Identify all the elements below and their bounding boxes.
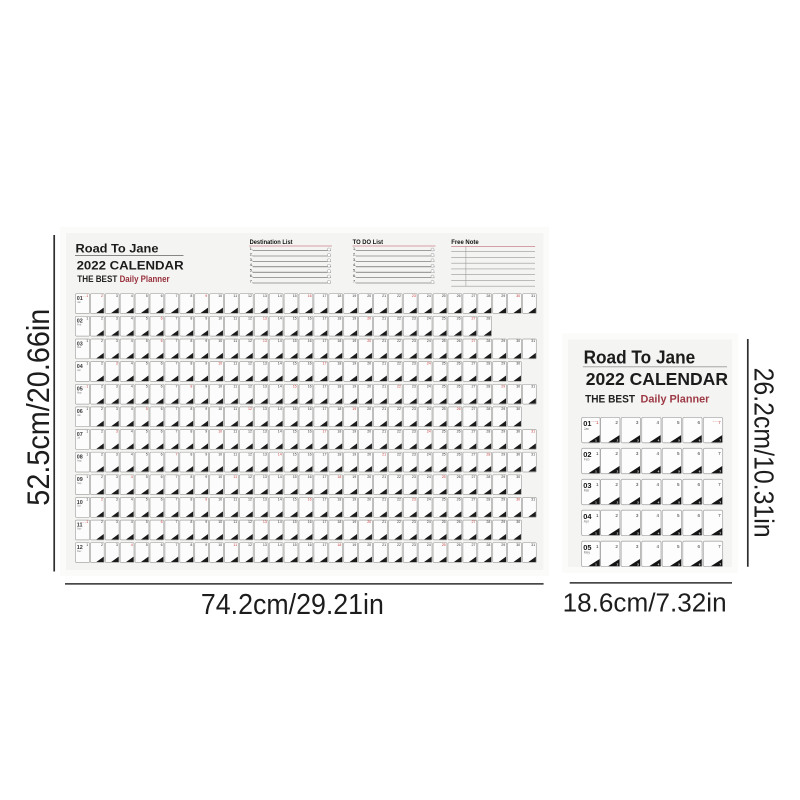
svg-text:20: 20 <box>367 543 371 547</box>
svg-text:6: 6 <box>161 498 163 502</box>
svg-text:24: 24 <box>427 362 431 366</box>
svg-text:27: 27 <box>472 475 476 479</box>
svg-text:16: 16 <box>308 407 312 411</box>
svg-text:13: 13 <box>263 430 267 434</box>
svg-text:3: 3 <box>116 475 118 479</box>
svg-text:19: 19 <box>352 294 356 298</box>
svg-text:18: 18 <box>337 452 341 456</box>
svg-text:27: 27 <box>472 362 476 366</box>
svg-text:6: 6 <box>699 501 701 505</box>
svg-text:6: 6 <box>161 407 163 411</box>
svg-text:15: 15 <box>293 384 297 388</box>
svg-text:14: 14 <box>278 384 282 388</box>
svg-text:27: 27 <box>472 543 476 547</box>
svg-text:17: 17 <box>323 430 327 434</box>
svg-text:7: 7 <box>719 501 721 505</box>
svg-text:25: 25 <box>442 452 446 456</box>
svg-text:5: 5 <box>146 384 148 388</box>
svg-text:13: 13 <box>263 543 267 547</box>
svg-text:21: 21 <box>382 316 386 320</box>
svg-text:29: 29 <box>501 362 505 366</box>
svg-text:23: 23 <box>412 316 416 320</box>
svg-text:17: 17 <box>323 339 327 343</box>
svg-text:Jan: Jan <box>584 427 589 431</box>
svg-text:6: 6 <box>698 451 701 456</box>
svg-text:6: 6 <box>161 384 163 388</box>
svg-text:5: 5 <box>146 362 148 366</box>
svg-text:1.: 1. <box>353 247 356 251</box>
svg-text:8: 8 <box>190 520 192 524</box>
svg-text:6: 6 <box>698 513 701 518</box>
svg-text:11: 11 <box>233 384 237 388</box>
svg-text:23: 23 <box>412 294 416 298</box>
svg-text:24: 24 <box>427 407 431 411</box>
svg-text:1: 1 <box>595 562 597 566</box>
svg-text:5.: 5. <box>353 269 356 273</box>
svg-text:Apr: Apr <box>584 520 590 524</box>
svg-text:2: 2 <box>617 562 619 566</box>
svg-text:22: 22 <box>397 362 401 366</box>
svg-text:15: 15 <box>293 475 297 479</box>
svg-text:12: 12 <box>248 543 252 547</box>
svg-text:25: 25 <box>442 339 446 343</box>
svg-text:30: 30 <box>516 362 520 366</box>
svg-text:Daily Planner: Daily Planner <box>120 274 170 284</box>
svg-text:23: 23 <box>412 498 416 502</box>
svg-text:2022 CALENDAR: 2022 CALENDAR <box>586 369 729 389</box>
svg-text:30: 30 <box>516 407 520 411</box>
svg-text:13: 13 <box>263 475 267 479</box>
svg-text:18: 18 <box>337 520 341 524</box>
svg-text:3: 3 <box>637 439 639 443</box>
svg-text:Mar: Mar <box>77 346 81 349</box>
svg-text:Jan: Jan <box>77 301 82 304</box>
svg-text:6: 6 <box>161 475 163 479</box>
svg-text:16: 16 <box>308 543 312 547</box>
svg-text:9: 9 <box>205 316 207 320</box>
svg-text:18: 18 <box>337 543 341 547</box>
svg-text:24: 24 <box>427 316 431 320</box>
svg-text:30: 30 <box>516 498 520 502</box>
svg-text:23: 23 <box>412 543 416 547</box>
svg-text:27: 27 <box>472 498 476 502</box>
svg-text:21: 21 <box>382 452 386 456</box>
svg-text:3: 3 <box>636 482 639 487</box>
svg-text:16: 16 <box>308 498 312 502</box>
svg-text:10: 10 <box>218 407 222 411</box>
svg-text:7: 7 <box>176 498 178 502</box>
svg-text:28: 28 <box>486 407 490 411</box>
svg-text:4: 4 <box>131 430 133 434</box>
svg-text:74.2cm/29.21in: 74.2cm/29.21in <box>201 589 384 621</box>
svg-text:2: 2 <box>101 362 103 366</box>
svg-text:3: 3 <box>116 339 118 343</box>
svg-text:26: 26 <box>457 475 461 479</box>
svg-text:2: 2 <box>101 407 103 411</box>
svg-text:28: 28 <box>486 362 490 366</box>
svg-text:4: 4 <box>131 339 133 343</box>
svg-text:25: 25 <box>442 316 446 320</box>
svg-text:14: 14 <box>278 543 282 547</box>
svg-text:27: 27 <box>472 339 476 343</box>
svg-text:29: 29 <box>501 452 505 456</box>
svg-text:4: 4 <box>131 543 133 547</box>
svg-text:2: 2 <box>617 439 619 443</box>
svg-text:17: 17 <box>323 452 327 456</box>
svg-text:Aug: Aug <box>77 459 82 462</box>
svg-text:5: 5 <box>677 544 680 549</box>
svg-text:1: 1 <box>595 532 597 536</box>
svg-text:31: 31 <box>531 543 535 547</box>
svg-text:2: 2 <box>617 501 619 505</box>
svg-text:28: 28 <box>486 316 490 320</box>
svg-text:Mar: Mar <box>584 489 591 493</box>
svg-text:28: 28 <box>486 294 490 298</box>
svg-text:14: 14 <box>278 452 282 456</box>
svg-text:5: 5 <box>678 470 680 474</box>
svg-text:14: 14 <box>278 362 282 366</box>
svg-text:Feb: Feb <box>77 324 82 327</box>
svg-text:7: 7 <box>718 420 721 425</box>
svg-text:17: 17 <box>323 543 327 547</box>
svg-text:1: 1 <box>86 430 88 434</box>
svg-text:2: 2 <box>101 452 103 456</box>
svg-text:7: 7 <box>176 316 178 320</box>
svg-text:1: 1 <box>86 498 88 502</box>
svg-text:22: 22 <box>397 498 401 502</box>
svg-text:4: 4 <box>131 520 133 524</box>
svg-text:8: 8 <box>190 362 192 366</box>
svg-text:30: 30 <box>516 430 520 434</box>
svg-text:18: 18 <box>337 407 341 411</box>
svg-text:23: 23 <box>412 475 416 479</box>
svg-text:9: 9 <box>205 520 207 524</box>
svg-text:1: 1 <box>596 544 599 549</box>
svg-text:15: 15 <box>293 498 297 502</box>
svg-text:4: 4 <box>131 362 133 366</box>
svg-text:16: 16 <box>308 384 312 388</box>
svg-text:2: 2 <box>101 475 103 479</box>
svg-text:24: 24 <box>427 430 431 434</box>
svg-text:8: 8 <box>190 384 192 388</box>
svg-text:7: 7 <box>176 452 178 456</box>
svg-text:4: 4 <box>658 532 660 536</box>
svg-text:18.6cm/7.32in: 18.6cm/7.32in <box>563 590 727 618</box>
svg-text:26: 26 <box>457 316 461 320</box>
svg-text:3: 3 <box>116 452 118 456</box>
svg-text:29: 29 <box>501 520 505 524</box>
svg-text:Sep: Sep <box>77 482 82 485</box>
svg-text:5: 5 <box>146 452 148 456</box>
svg-text:21: 21 <box>382 498 386 502</box>
svg-text:10: 10 <box>218 475 222 479</box>
svg-text:4: 4 <box>131 407 133 411</box>
svg-text:26: 26 <box>457 339 461 343</box>
svg-text:21: 21 <box>382 339 386 343</box>
svg-text:12: 12 <box>248 452 252 456</box>
svg-text:23: 23 <box>412 520 416 524</box>
svg-text:19: 19 <box>352 316 356 320</box>
svg-text:Apr: Apr <box>77 369 81 372</box>
svg-text:9: 9 <box>205 384 207 388</box>
svg-text:9: 9 <box>205 498 207 502</box>
svg-text:16: 16 <box>308 430 312 434</box>
svg-text:3: 3 <box>636 451 639 456</box>
svg-text:17: 17 <box>323 362 327 366</box>
svg-text:15: 15 <box>293 316 297 320</box>
svg-text:18: 18 <box>337 339 341 343</box>
svg-text:Oct: Oct <box>77 505 81 508</box>
svg-text:7: 7 <box>176 543 178 547</box>
svg-text:3: 3 <box>116 543 118 547</box>
svg-text:3: 3 <box>636 513 639 518</box>
svg-text:5: 5 <box>146 430 148 434</box>
svg-text:May: May <box>584 551 591 555</box>
svg-text:8: 8 <box>190 316 192 320</box>
svg-text:1: 1 <box>86 362 88 366</box>
svg-text:16: 16 <box>308 475 312 479</box>
svg-text:28: 28 <box>486 475 490 479</box>
svg-text:7: 7 <box>718 513 721 518</box>
svg-text:5: 5 <box>146 339 148 343</box>
svg-text:6: 6 <box>161 520 163 524</box>
svg-text:21: 21 <box>382 407 386 411</box>
svg-text:19: 19 <box>352 498 356 502</box>
svg-text:19: 19 <box>352 430 356 434</box>
svg-text:23: 23 <box>412 384 416 388</box>
svg-text:4: 4 <box>131 452 133 456</box>
svg-text:5: 5 <box>146 543 148 547</box>
svg-text:17: 17 <box>323 520 327 524</box>
svg-text:30: 30 <box>516 294 520 298</box>
svg-text:24: 24 <box>427 384 431 388</box>
svg-text:23: 23 <box>412 430 416 434</box>
svg-text:16: 16 <box>308 294 312 298</box>
svg-text:30: 30 <box>516 384 520 388</box>
svg-text:20: 20 <box>367 316 371 320</box>
svg-text:1: 1 <box>86 294 88 298</box>
svg-text:27: 27 <box>472 520 476 524</box>
svg-text:15: 15 <box>293 407 297 411</box>
svg-text:9: 9 <box>205 475 207 479</box>
svg-text:2: 2 <box>615 513 618 518</box>
svg-text:14: 14 <box>278 475 282 479</box>
svg-text:4: 4 <box>658 562 660 566</box>
svg-text:12: 12 <box>248 384 252 388</box>
svg-text:28: 28 <box>486 430 490 434</box>
svg-text:15: 15 <box>293 362 297 366</box>
svg-text:6: 6 <box>698 482 701 487</box>
svg-text:22: 22 <box>397 452 401 456</box>
svg-text:5: 5 <box>678 532 680 536</box>
svg-text:31: 31 <box>531 384 535 388</box>
svg-text:1: 1 <box>86 339 88 343</box>
svg-text:11: 11 <box>233 520 237 524</box>
svg-text:6: 6 <box>161 543 163 547</box>
svg-text:10: 10 <box>218 294 222 298</box>
svg-text:11: 11 <box>233 407 237 411</box>
svg-text:5: 5 <box>146 316 148 320</box>
svg-text:18: 18 <box>337 384 341 388</box>
svg-text:8: 8 <box>190 543 192 547</box>
svg-text:14: 14 <box>278 520 282 524</box>
svg-text:12: 12 <box>248 520 252 524</box>
svg-text:10: 10 <box>218 430 222 434</box>
svg-text:6: 6 <box>699 439 701 443</box>
svg-text:28: 28 <box>486 339 490 343</box>
svg-text:Destination List: Destination List <box>250 240 293 246</box>
svg-text:6: 6 <box>698 420 701 425</box>
svg-text:17: 17 <box>323 294 327 298</box>
svg-text:21: 21 <box>382 430 386 434</box>
svg-text:7: 7 <box>718 451 721 456</box>
svg-text:17: 17 <box>323 384 327 388</box>
svg-text:3.: 3. <box>250 258 253 262</box>
svg-text:23: 23 <box>412 339 416 343</box>
svg-text:6: 6 <box>161 430 163 434</box>
svg-text:25: 25 <box>442 475 446 479</box>
svg-text:29: 29 <box>501 543 505 547</box>
svg-text:May: May <box>77 392 82 395</box>
svg-text:7: 7 <box>176 430 178 434</box>
svg-text:2: 2 <box>101 430 103 434</box>
svg-text:4: 4 <box>131 498 133 502</box>
svg-text:9: 9 <box>205 407 207 411</box>
svg-text:12: 12 <box>248 294 252 298</box>
svg-text:20: 20 <box>367 384 371 388</box>
svg-text:3: 3 <box>116 294 118 298</box>
svg-text:1: 1 <box>596 420 599 425</box>
svg-text:2: 2 <box>101 384 103 388</box>
svg-text:TO DO List: TO DO List <box>353 240 384 246</box>
svg-text:25: 25 <box>442 430 446 434</box>
svg-text:22: 22 <box>397 294 401 298</box>
svg-text:26: 26 <box>457 294 461 298</box>
svg-text:9: 9 <box>205 543 207 547</box>
svg-text:31: 31 <box>531 452 535 456</box>
svg-text:3: 3 <box>637 532 639 536</box>
svg-text:11: 11 <box>233 475 237 479</box>
svg-text:21: 21 <box>382 362 386 366</box>
svg-text:5: 5 <box>146 407 148 411</box>
svg-text:7: 7 <box>176 520 178 524</box>
svg-text:25: 25 <box>442 362 446 366</box>
svg-text:22: 22 <box>397 384 401 388</box>
svg-text:8: 8 <box>190 294 192 298</box>
svg-text:1: 1 <box>86 520 88 524</box>
svg-text:19: 19 <box>352 520 356 524</box>
svg-text:25: 25 <box>442 407 446 411</box>
svg-text:22: 22 <box>397 543 401 547</box>
svg-text:27: 27 <box>472 430 476 434</box>
svg-text:3: 3 <box>116 316 118 320</box>
svg-text:13: 13 <box>263 520 267 524</box>
svg-text:9: 9 <box>205 339 207 343</box>
svg-text:6: 6 <box>699 532 701 536</box>
svg-text:13: 13 <box>263 452 267 456</box>
svg-text:4.: 4. <box>353 263 356 267</box>
svg-text:25: 25 <box>442 543 446 547</box>
svg-text:14: 14 <box>278 339 282 343</box>
svg-text:4: 4 <box>131 475 133 479</box>
svg-text:30: 30 <box>516 520 520 524</box>
svg-text:28: 28 <box>486 384 490 388</box>
svg-text:6: 6 <box>699 562 701 566</box>
svg-text:26: 26 <box>457 498 461 502</box>
svg-text:26: 26 <box>457 430 461 434</box>
svg-text:1.: 1. <box>250 247 253 251</box>
svg-text:7: 7 <box>176 475 178 479</box>
svg-text:15: 15 <box>293 294 297 298</box>
svg-text:8: 8 <box>190 407 192 411</box>
svg-text:6: 6 <box>161 452 163 456</box>
svg-text:14: 14 <box>278 407 282 411</box>
svg-text:4: 4 <box>656 544 659 549</box>
svg-text:10: 10 <box>218 339 222 343</box>
svg-text:4: 4 <box>656 513 659 518</box>
svg-text:6.: 6. <box>353 274 356 278</box>
svg-text:10: 10 <box>218 452 222 456</box>
svg-text:4.: 4. <box>250 263 253 267</box>
svg-text:7: 7 <box>718 482 721 487</box>
svg-text:3.: 3. <box>353 258 356 262</box>
svg-text:6: 6 <box>698 544 701 549</box>
svg-text:11: 11 <box>233 452 237 456</box>
svg-text:9: 9 <box>205 294 207 298</box>
svg-text:Jul: Jul <box>77 437 81 440</box>
svg-text:2: 2 <box>615 544 618 549</box>
svg-text:25: 25 <box>442 384 446 388</box>
svg-text:17: 17 <box>323 475 327 479</box>
svg-text:4: 4 <box>658 501 660 505</box>
svg-text:Road To Jane: Road To Jane <box>76 243 159 255</box>
svg-text:29: 29 <box>501 384 505 388</box>
svg-text:5: 5 <box>677 513 680 518</box>
svg-text:29: 29 <box>501 498 505 502</box>
svg-text:7.: 7. <box>250 279 253 283</box>
svg-text:22: 22 <box>397 520 401 524</box>
svg-text:27: 27 <box>472 452 476 456</box>
svg-text:5: 5 <box>146 498 148 502</box>
svg-text:1: 1 <box>86 543 88 547</box>
svg-text:18: 18 <box>337 316 341 320</box>
svg-text:3: 3 <box>637 470 639 474</box>
svg-text:8: 8 <box>190 339 192 343</box>
svg-text:14: 14 <box>278 498 282 502</box>
svg-text:14: 14 <box>278 294 282 298</box>
svg-text:6: 6 <box>161 316 163 320</box>
svg-text:16: 16 <box>308 362 312 366</box>
svg-text:2.: 2. <box>353 252 356 256</box>
svg-text:1: 1 <box>86 384 88 388</box>
svg-text:29: 29 <box>501 430 505 434</box>
svg-text:1: 1 <box>595 470 597 474</box>
svg-text:7: 7 <box>176 339 178 343</box>
svg-text:13: 13 <box>263 384 267 388</box>
svg-text:19: 19 <box>352 362 356 366</box>
svg-text:15: 15 <box>293 520 297 524</box>
svg-text:20: 20 <box>367 407 371 411</box>
svg-text:26: 26 <box>457 407 461 411</box>
svg-text:19: 19 <box>352 543 356 547</box>
svg-text:12: 12 <box>248 362 252 366</box>
svg-text:1: 1 <box>595 501 597 505</box>
svg-text:18: 18 <box>337 362 341 366</box>
svg-text:12: 12 <box>248 475 252 479</box>
svg-text:2: 2 <box>101 339 103 343</box>
svg-text:20: 20 <box>367 430 371 434</box>
svg-text:2: 2 <box>101 543 103 547</box>
